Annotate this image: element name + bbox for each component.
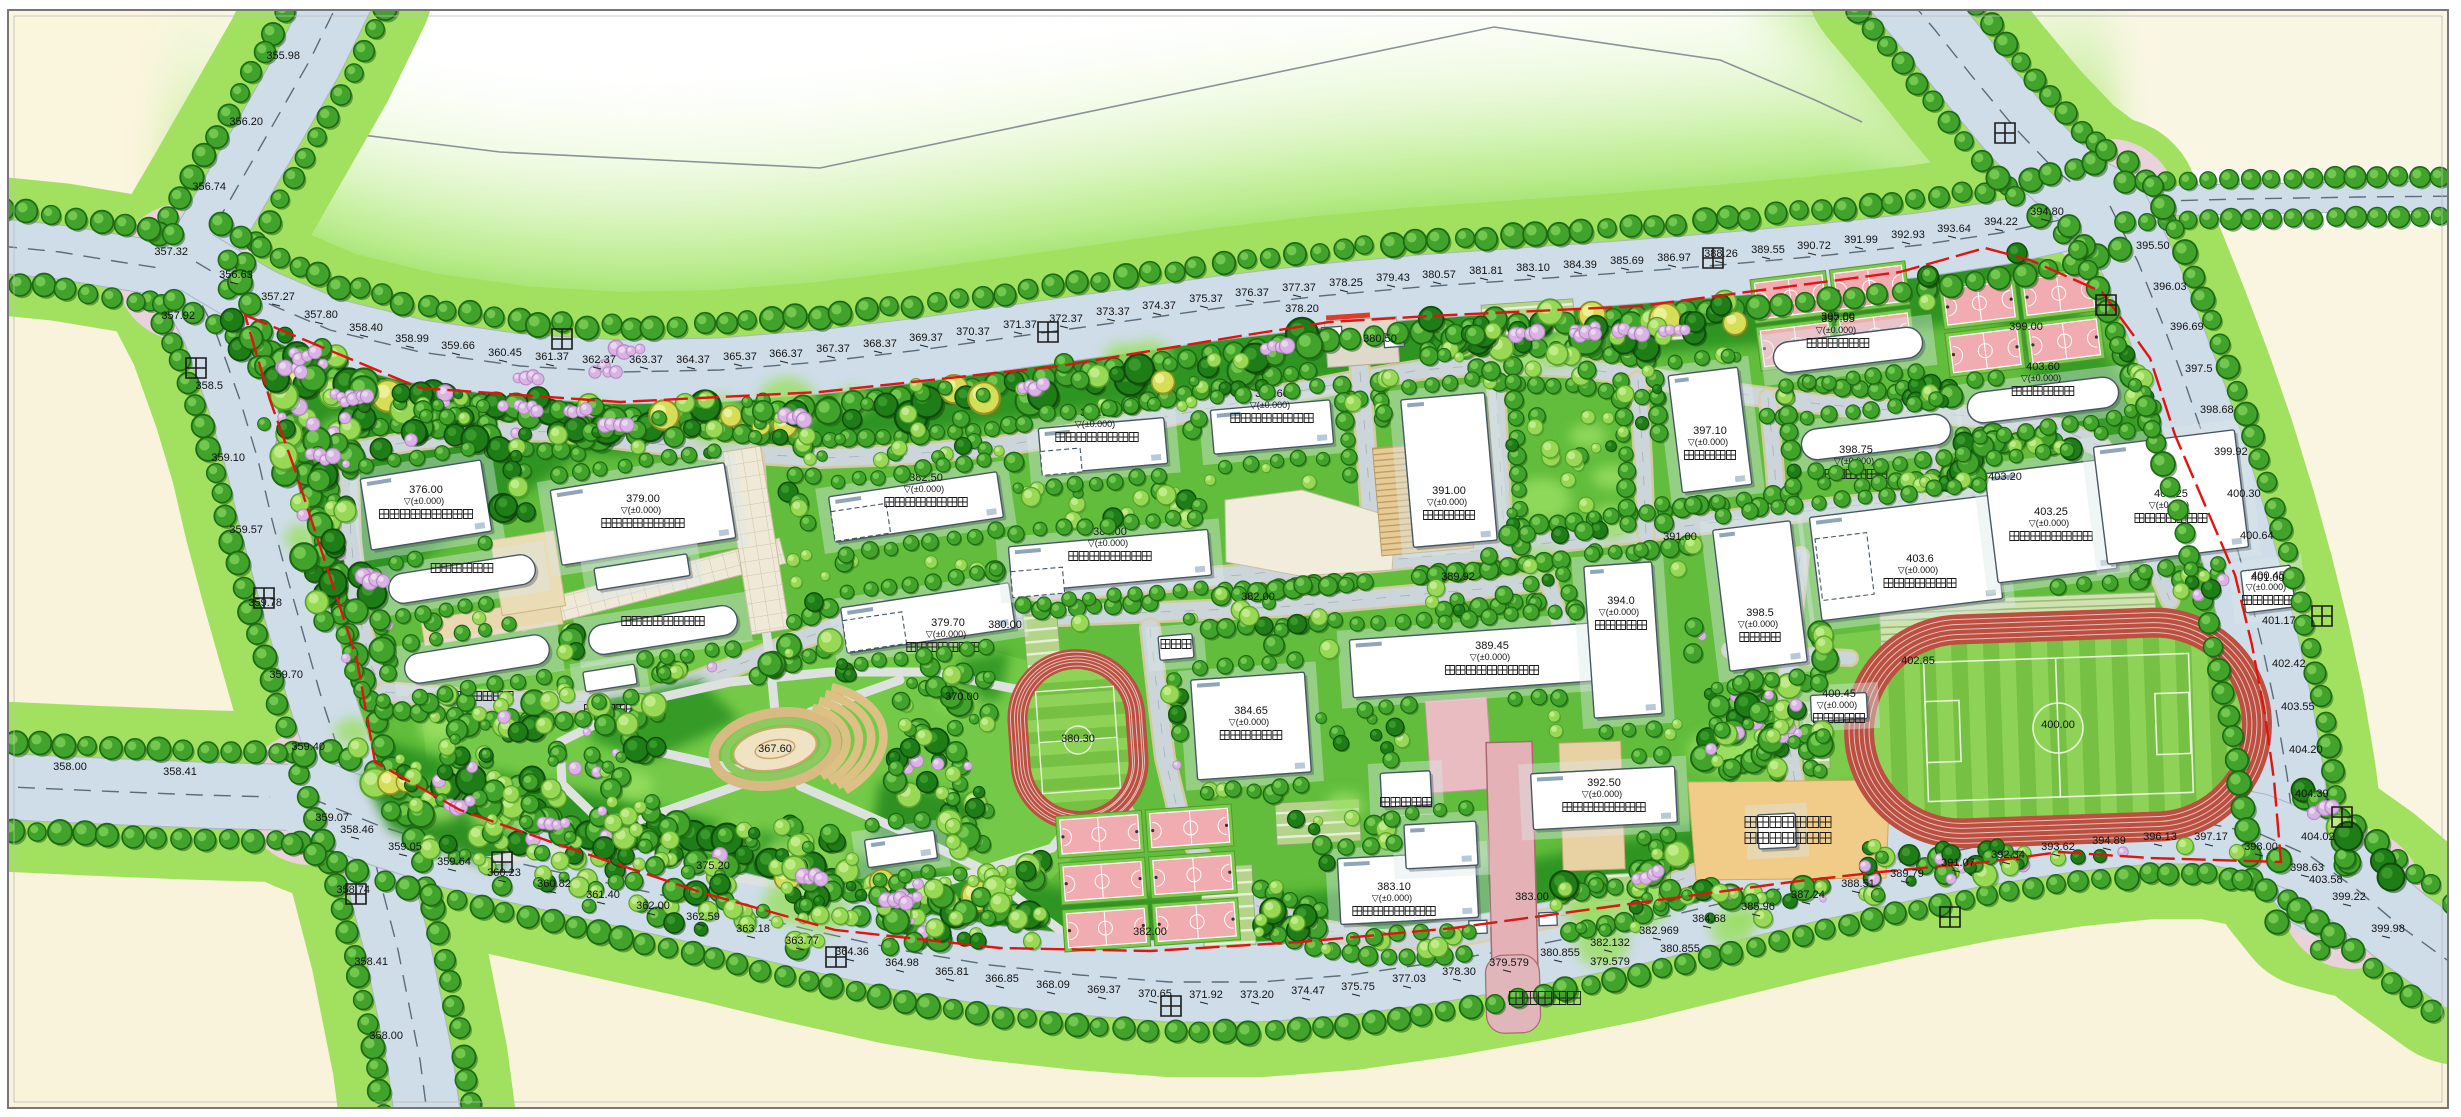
svg-text:383.00: 383.00 <box>1515 891 1549 903</box>
svg-text:382.969: 382.969 <box>1639 925 1679 937</box>
svg-text:399.98: 399.98 <box>2371 923 2405 935</box>
svg-text:379.00: 379.00 <box>626 493 660 505</box>
svg-text:358.00: 358.00 <box>369 1030 403 1042</box>
svg-text:391.00: 391.00 <box>1432 485 1466 497</box>
svg-text:366.37: 366.37 <box>769 348 803 360</box>
svg-text:378.25: 378.25 <box>1329 277 1363 289</box>
svg-text:383.10: 383.10 <box>1377 881 1411 893</box>
svg-text:394.0: 394.0 <box>1607 595 1635 607</box>
svg-text:393.62: 393.62 <box>2041 841 2075 853</box>
svg-text:359.10: 359.10 <box>211 452 245 464</box>
svg-text:▽(±0.000): ▽(±0.000) <box>621 505 661 515</box>
svg-text:391.07: 391.07 <box>1941 857 1975 869</box>
svg-text:372.37: 372.37 <box>1049 313 1083 325</box>
svg-text:379.579: 379.579 <box>1590 956 1630 968</box>
svg-text:357.27: 357.27 <box>261 291 295 303</box>
svg-text:363.37: 363.37 <box>629 354 663 366</box>
svg-text:402.85: 402.85 <box>1901 655 1935 667</box>
svg-text:397.17: 397.17 <box>2194 831 2228 843</box>
svg-text:358.00: 358.00 <box>53 761 87 773</box>
svg-text:362.37: 362.37 <box>582 354 616 366</box>
svg-text:359.05: 359.05 <box>388 841 422 853</box>
svg-text:402.42: 402.42 <box>2272 658 2306 670</box>
svg-text:361.40: 361.40 <box>586 889 620 901</box>
svg-text:▽(±0.000): ▽(±0.000) <box>1088 538 1128 548</box>
svg-text:384.68: 384.68 <box>1692 913 1726 925</box>
svg-text:394.89: 394.89 <box>2092 835 2126 847</box>
svg-text:381.81: 381.81 <box>1469 265 1503 277</box>
svg-text:371.92: 371.92 <box>1189 989 1223 1001</box>
svg-text:380.57: 380.57 <box>1422 269 1456 281</box>
svg-text:360.45: 360.45 <box>488 347 522 359</box>
svg-text:403.55: 403.55 <box>2281 701 2315 713</box>
svg-text:394.80: 394.80 <box>2030 206 2064 218</box>
svg-text:401.17: 401.17 <box>2262 615 2296 627</box>
svg-text:397.10: 397.10 <box>1693 425 1727 437</box>
svg-text:382.132: 382.132 <box>1590 937 1630 949</box>
svg-text:387.24: 387.24 <box>1791 889 1825 901</box>
svg-text:404.02: 404.02 <box>2301 831 2335 843</box>
svg-text:365.81: 365.81 <box>935 966 969 978</box>
svg-text:357.32: 357.32 <box>154 246 188 258</box>
svg-text:358.46: 358.46 <box>340 824 374 836</box>
svg-text:▽(±0.000): ▽(±0.000) <box>1738 619 1778 629</box>
svg-text:▽(±0.000): ▽(±0.000) <box>904 484 944 494</box>
svg-text:375.37: 375.37 <box>1189 293 1223 305</box>
svg-text:▽(±0.000): ▽(±0.000) <box>1816 325 1856 335</box>
svg-text:355.98: 355.98 <box>266 50 300 62</box>
svg-text:370.00: 370.00 <box>945 691 979 703</box>
svg-text:358.40: 358.40 <box>349 322 383 334</box>
svg-text:379.70: 379.70 <box>931 617 965 629</box>
svg-text:404.20: 404.20 <box>2289 744 2323 756</box>
svg-text:370.37: 370.37 <box>956 326 990 338</box>
svg-text:386.97: 386.97 <box>1657 252 1691 264</box>
svg-text:399.22: 399.22 <box>2332 891 2366 903</box>
svg-text:375.75: 375.75 <box>1341 981 1375 993</box>
svg-text:398.68: 398.68 <box>2200 404 2234 416</box>
svg-text:▽(±0.000): ▽(±0.000) <box>1817 700 1857 710</box>
svg-text:358.41: 358.41 <box>354 956 388 968</box>
svg-text:389.92: 389.92 <box>1441 571 1475 583</box>
svg-text:377.37: 377.37 <box>1282 282 1316 294</box>
svg-text:400.00: 400.00 <box>2041 719 2075 731</box>
svg-text:379.579: 379.579 <box>1489 957 1529 969</box>
svg-text:380.00: 380.00 <box>988 619 1022 631</box>
svg-text:393.64: 393.64 <box>1937 223 1971 235</box>
svg-text:▽(±0.000): ▽(±0.000) <box>1898 565 1938 575</box>
svg-text:403.25: 403.25 <box>2034 506 2068 518</box>
svg-text:396.03: 396.03 <box>2153 281 2187 293</box>
svg-text:374.37: 374.37 <box>1142 300 1176 312</box>
svg-text:357.80: 357.80 <box>304 309 338 321</box>
svg-text:384.65: 384.65 <box>1234 705 1268 717</box>
svg-text:357.92: 357.92 <box>161 310 195 322</box>
svg-text:358.41: 358.41 <box>163 766 197 778</box>
svg-text:403.6: 403.6 <box>1906 553 1934 565</box>
svg-text:373.20: 373.20 <box>1240 989 1274 1001</box>
svg-text:▽(±0.000): ▽(±0.000) <box>1372 893 1412 903</box>
svg-text:392.93: 392.93 <box>1891 229 1925 241</box>
svg-text:389.55: 389.55 <box>1751 244 1785 256</box>
svg-text:358.5: 358.5 <box>195 380 223 392</box>
svg-text:399.92: 399.92 <box>2214 446 2248 458</box>
svg-text:403.58: 403.58 <box>2309 874 2343 886</box>
svg-text:401.00: 401.00 <box>2251 572 2285 584</box>
svg-text:378.20: 378.20 <box>1285 303 1319 315</box>
svg-text:392.34: 392.34 <box>1991 849 2025 861</box>
svg-text:380.30: 380.30 <box>1061 733 1095 745</box>
svg-text:370.65: 370.65 <box>1138 988 1172 1000</box>
svg-text:367.60: 367.60 <box>758 743 792 755</box>
svg-text:404.39: 404.39 <box>2295 788 2329 800</box>
svg-text:359.07: 359.07 <box>315 812 349 824</box>
svg-text:377.03: 377.03 <box>1392 973 1426 985</box>
svg-text:382.00: 382.00 <box>1133 926 1167 938</box>
svg-text:365.37: 365.37 <box>723 351 757 363</box>
svg-text:369.37: 369.37 <box>1087 984 1121 996</box>
svg-text:369.37: 369.37 <box>909 332 943 344</box>
svg-text:379.43: 379.43 <box>1376 272 1410 284</box>
svg-text:▽(±0.000): ▽(±0.000) <box>1229 717 1269 727</box>
svg-text:380.50: 380.50 <box>1363 333 1397 345</box>
svg-text:400.64: 400.64 <box>2240 530 2274 542</box>
svg-text:▽(±0.000): ▽(±0.000) <box>1470 652 1510 662</box>
svg-text:380.855: 380.855 <box>1540 947 1580 959</box>
svg-text:384.39: 384.39 <box>1563 259 1597 271</box>
svg-text:375.20: 375.20 <box>696 860 730 872</box>
svg-text:368.37: 368.37 <box>863 338 897 350</box>
svg-text:363.18: 363.18 <box>736 923 770 935</box>
svg-text:380.855: 380.855 <box>1660 943 1700 955</box>
svg-text:361.37: 361.37 <box>535 351 569 363</box>
svg-text:362.00: 362.00 <box>636 900 670 912</box>
svg-text:398.63: 398.63 <box>2290 862 2324 874</box>
svg-text:389.45: 389.45 <box>1475 640 1509 652</box>
svg-text:397.5: 397.5 <box>2185 363 2213 375</box>
svg-text:392.50: 392.50 <box>1587 777 1621 789</box>
svg-text:▽(±0.000): ▽(±0.000) <box>1599 607 1639 617</box>
svg-text:398.75: 398.75 <box>1839 444 1873 456</box>
svg-text:359.57: 359.57 <box>229 524 263 536</box>
svg-text:391.00: 391.00 <box>1663 531 1697 543</box>
svg-text:388.51: 388.51 <box>1841 878 1875 890</box>
svg-text:356.74: 356.74 <box>192 181 226 193</box>
svg-text:403.20: 403.20 <box>1988 471 2022 483</box>
svg-text:▽(±0.000): ▽(±0.000) <box>1427 497 1467 507</box>
svg-text:▽(±0.000): ▽(±0.000) <box>2021 373 2061 383</box>
svg-text:391.99: 391.99 <box>1844 234 1878 246</box>
svg-text:359.66: 359.66 <box>441 340 475 352</box>
svg-text:378.30: 378.30 <box>1442 966 1476 978</box>
svg-text:376.37: 376.37 <box>1235 287 1269 299</box>
svg-text:376.00: 376.00 <box>409 484 443 496</box>
svg-text:358.99: 358.99 <box>395 333 429 345</box>
svg-text:398.5: 398.5 <box>1746 607 1774 619</box>
svg-text:389.79: 389.79 <box>1890 868 1924 880</box>
svg-text:385.69: 385.69 <box>1610 255 1644 267</box>
svg-text:395.50: 395.50 <box>2136 240 2170 252</box>
svg-text:356.20: 356.20 <box>229 116 263 128</box>
svg-text:374.47: 374.47 <box>1291 985 1325 997</box>
svg-text:396.69: 396.69 <box>2170 321 2204 333</box>
svg-text:360.82: 360.82 <box>537 878 571 890</box>
svg-text:356.63: 356.63 <box>219 269 253 281</box>
svg-text:399.00: 399.00 <box>2009 321 2043 333</box>
svg-text:390.72: 390.72 <box>1797 240 1831 252</box>
svg-text:398.00: 398.00 <box>2244 841 2278 853</box>
svg-text:396.13: 396.13 <box>2143 831 2177 843</box>
svg-text:▽(±0.000): ▽(±0.000) <box>1582 789 1622 799</box>
svg-text:403.60: 403.60 <box>2026 361 2060 373</box>
svg-text:367.37: 367.37 <box>816 343 850 355</box>
svg-text:▽(±0.000): ▽(±0.000) <box>1688 437 1728 447</box>
svg-text:382.00: 382.00 <box>1241 591 1275 603</box>
svg-text:▽(±0.000): ▽(±0.000) <box>2029 518 2069 528</box>
svg-text:368.09: 368.09 <box>1036 979 1070 991</box>
svg-text:359.64: 359.64 <box>437 856 471 868</box>
svg-text:397.05: 397.05 <box>1821 313 1855 325</box>
svg-text:394.22: 394.22 <box>1984 216 2018 228</box>
svg-text:359.70: 359.70 <box>269 669 303 681</box>
svg-text:362.59: 362.59 <box>686 911 720 923</box>
svg-text:364.37: 364.37 <box>676 354 710 366</box>
svg-text:366.85: 366.85 <box>985 973 1019 985</box>
svg-text:371.37: 371.37 <box>1003 319 1037 331</box>
svg-text:363.77: 363.77 <box>785 935 819 947</box>
svg-text:383.10: 383.10 <box>1516 262 1550 274</box>
svg-text:364.98: 364.98 <box>885 957 919 969</box>
svg-text:400.30: 400.30 <box>2227 488 2261 500</box>
svg-text:▽(±0.000): ▽(±0.000) <box>404 496 444 506</box>
svg-text:359.40: 359.40 <box>291 741 325 753</box>
svg-text:385.96: 385.96 <box>1741 901 1775 913</box>
svg-text:▽(±0.000): ▽(±0.000) <box>926 629 966 639</box>
svg-text:373.37: 373.37 <box>1096 306 1130 318</box>
